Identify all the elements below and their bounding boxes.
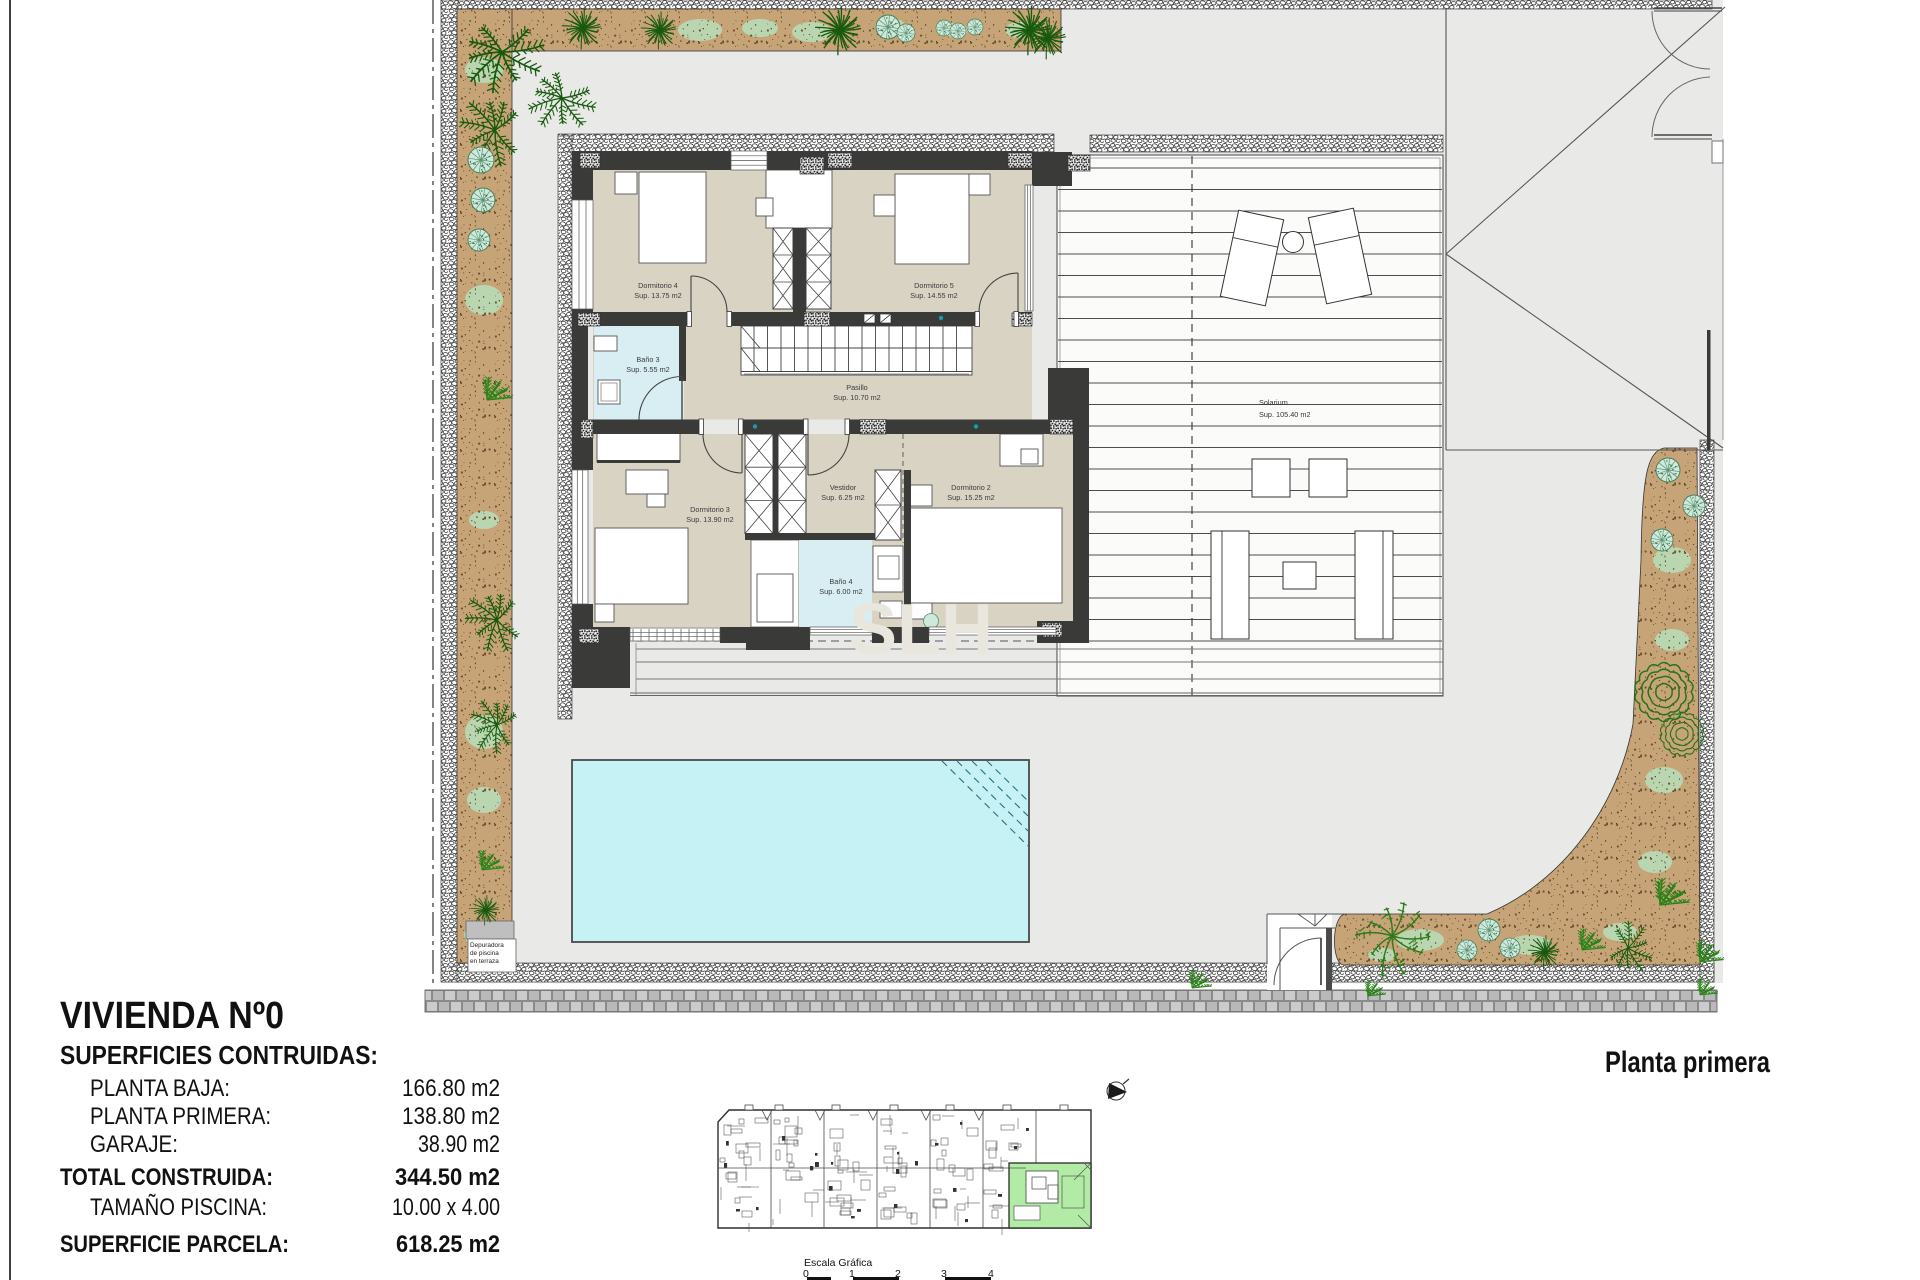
svg-text:TAMAÑO PISCINA:: TAMAÑO PISCINA: (90, 1194, 267, 1221)
svg-text:138.80 m2: 138.80 m2 (402, 1103, 500, 1130)
svg-text:Sup. 13.90 m2: Sup. 13.90 m2 (686, 515, 733, 524)
svg-text:Dormitorio 3: Dormitorio 3 (690, 505, 730, 514)
svg-text:VIVIENDA Nº0: VIVIENDA Nº0 (60, 995, 284, 1037)
svg-text:Vestidor: Vestidor (830, 483, 857, 492)
svg-text:SUPERFICIES CONTRUIDAS:: SUPERFICIES CONTRUIDAS: (60, 1040, 378, 1070)
svg-text:Dormitorio 2: Dormitorio 2 (951, 483, 991, 492)
svg-text:de piscina: de piscina (470, 950, 499, 957)
svg-text:Sup. 6.25 m2: Sup. 6.25 m2 (821, 493, 864, 502)
svg-text:SUPERFICIE PARCELA:: SUPERFICIE PARCELA: (60, 1231, 289, 1258)
svg-text:TOTAL CONSTRUIDA:: TOTAL CONSTRUIDA: (60, 1164, 273, 1191)
svg-text:344.50 m2: 344.50 m2 (395, 1164, 500, 1191)
svg-text:Sup. 14.55 m2: Sup. 14.55 m2 (910, 291, 957, 300)
svg-text:Dormitorio 4: Dormitorio 4 (638, 281, 678, 290)
svg-text:38.90 m2: 38.90 m2 (418, 1131, 500, 1158)
svg-text:PLANTA PRIMERA:: PLANTA PRIMERA: (90, 1103, 271, 1130)
svg-text:Sup. 15.25 m2: Sup. 15.25 m2 (947, 493, 994, 502)
svg-text:Escala Gráfica: Escala Gráfica (804, 1257, 872, 1269)
svg-text:Sup. 13.75 m2: Sup. 13.75 m2 (634, 291, 681, 300)
svg-text:618.25 m2: 618.25 m2 (396, 1231, 500, 1258)
svg-text:Baño 4: Baño 4 (829, 577, 852, 586)
svg-text:Solarium: Solarium (1259, 398, 1288, 407)
svg-text:Dormitorio 5: Dormitorio 5 (914, 281, 954, 290)
svg-text:Planta primera: Planta primera (1605, 1046, 1770, 1079)
svg-text:GARAJE:: GARAJE: (90, 1131, 178, 1158)
svg-text:SLH: SLH (849, 590, 993, 670)
svg-text:Pasillo: Pasillo (846, 383, 868, 392)
svg-text:10.00 x 4.00: 10.00 x 4.00 (392, 1194, 500, 1221)
svg-text:Baño 3: Baño 3 (636, 355, 659, 364)
svg-text:Sup. 10.70 m2: Sup. 10.70 m2 (833, 393, 880, 402)
svg-text:Sup. 5.55 m2: Sup. 5.55 m2 (626, 365, 669, 374)
svg-text:PLANTA BAJA:: PLANTA BAJA: (90, 1075, 230, 1102)
svg-text:Sup. 105.40 m2: Sup. 105.40 m2 (1259, 410, 1311, 419)
svg-text:en terraza: en terraza (470, 958, 499, 965)
svg-text:166.80 m2: 166.80 m2 (402, 1075, 500, 1102)
svg-text:Depuradora: Depuradora (470, 942, 504, 949)
